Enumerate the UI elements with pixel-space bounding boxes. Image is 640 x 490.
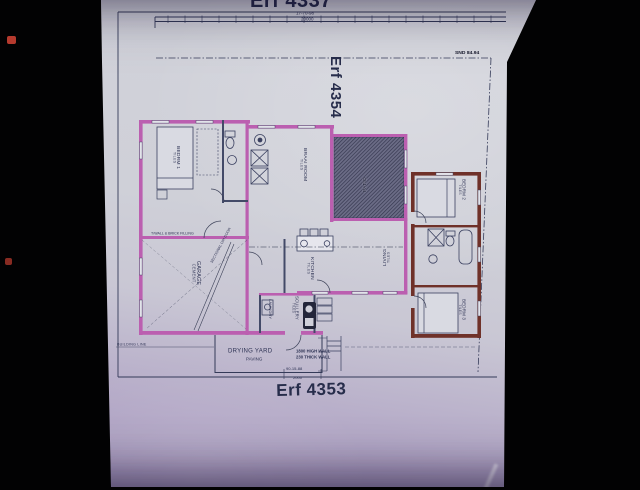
plan-sheet: Erf 4337 17-70-98 20000 SND 84.94 Erf 43… — [0, 0, 640, 490]
garage-wall-note: T/WALL & BRICK FILLING — [151, 232, 194, 236]
room-label-bedrm2: BEDRM 2 TILES — [458, 179, 466, 200]
room-finish: TILES — [172, 146, 176, 169]
red-artifact-dot-mid — [5, 258, 12, 265]
corner-beacon-marker: SND 84.94 — [455, 50, 479, 55]
room-label-drying-yard: DRYING YARD — [228, 348, 272, 354]
room-label-bedrm1: BEDRM 1 TILES — [172, 146, 181, 169]
room-name: LAUNDRY — [268, 299, 272, 319]
room-finish: TILES — [458, 299, 462, 320]
scullery-appliance — [303, 302, 316, 329]
room-finish: CEMENT — [191, 261, 195, 285]
room-name: BEDRM 1 — [176, 146, 181, 169]
red-artifact-dot-top — [7, 36, 16, 44]
top-boundary-distance: 20000 — [301, 17, 314, 22]
room-name: BEDRM 2 — [461, 179, 466, 200]
room-finish: TILES — [291, 296, 295, 320]
erf-4337-label: Erf 4337 — [250, 0, 332, 12]
room-label-scullery: SCULLERY TILES — [291, 296, 299, 320]
room-name: SCULLERY — [294, 296, 299, 320]
erf-4353-label: Erf 4353 — [276, 380, 347, 400]
patio-hatched-area — [334, 137, 404, 218]
room-finish: TILES — [458, 179, 462, 200]
kitchen-island — [297, 236, 333, 251]
bathtub-icon — [459, 230, 472, 264]
room-finish: TILES — [306, 257, 310, 280]
building-line-label: BUILDING LINE — [117, 343, 147, 347]
yard-wall-note-2: 230 THICK WALL — [296, 355, 330, 359]
garage-door-lines — [142, 240, 403, 331]
plan-linework — [0, 0, 640, 490]
room-label-garage: GARAGE CEMENT — [191, 261, 201, 285]
room-label-laundry: LAUNDRY — [268, 299, 272, 319]
room-label-living: LIVING TILES — [382, 249, 391, 266]
room-label-patio: PATIO — [362, 177, 367, 192]
room-name: BEDRM 3 — [461, 299, 466, 320]
room-finish: TILES — [387, 249, 391, 266]
geyser-icon — [255, 135, 266, 146]
room-name: BRAAI ROOM — [303, 148, 308, 181]
top-boundary-bearing: 17-70-98 — [296, 11, 314, 16]
yard-wall-note-1: 1800 HIGH WALL — [296, 349, 330, 353]
room-name: KITCHEN — [310, 257, 315, 280]
room-name: PATIO — [362, 177, 367, 192]
stove-icon — [300, 229, 328, 236]
room-label-bedrm3: BEDRM 3 TILES — [458, 299, 466, 320]
room-label-braai: BRAAI ROOM TILES — [299, 148, 308, 181]
drying-yard-finish: PAVING — [246, 357, 262, 362]
erf-4354-label: Erf 4354 — [327, 56, 343, 118]
room-name: GARAGE — [195, 261, 201, 285]
room-label-kitchen: KITCHEN TILES — [306, 257, 315, 280]
room-finish: TILES — [299, 148, 303, 181]
photo-of-floor-plan: Erf 4337 17-70-98 20000 SND 84.94 Erf 43… — [0, 0, 640, 490]
bottom-boundary-bearing: 90-15-88 — [286, 367, 302, 371]
